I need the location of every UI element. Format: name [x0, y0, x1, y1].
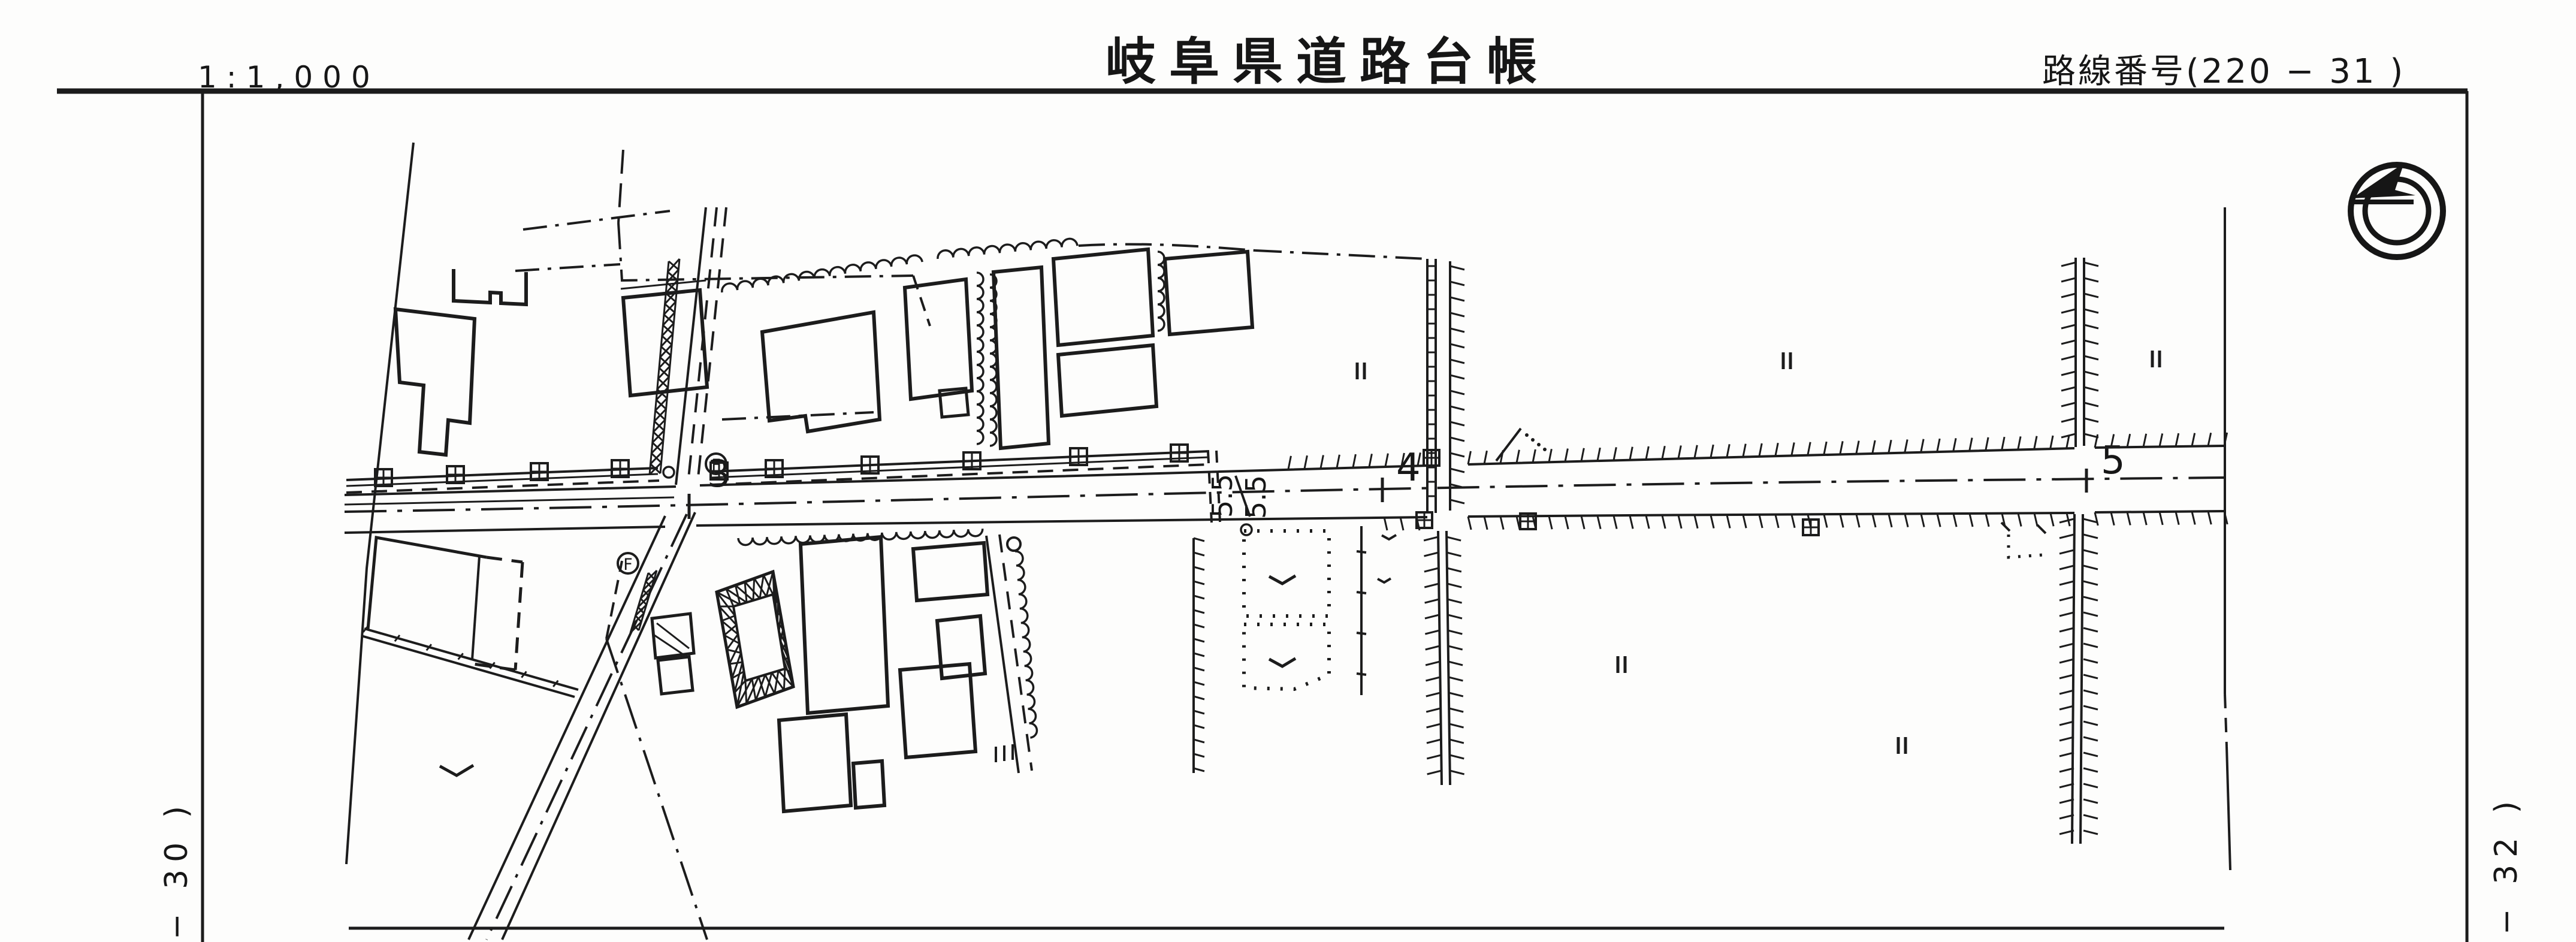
station-label-5: 5	[2101, 439, 2125, 483]
station-label-4: 4	[1396, 446, 1421, 490]
adjacent-sheet-ref-left: − 30 )	[159, 799, 195, 940]
road-ledger-map: 1:1,000 岐阜県道路台帳 路線番号(220 − 31 ) − 30 ) −…	[0, 0, 2576, 942]
north-arrow-icon	[2351, 163, 2443, 257]
adjacent-sheet-ref-right: − 32 )	[2489, 794, 2524, 935]
road-width-annotations: 5.5 5.5	[1206, 474, 1272, 519]
page-title: 岐阜県道路台帳	[1106, 32, 1550, 91]
road-width-value: 5.5	[1240, 475, 1272, 519]
route-number-label: 路線番号(220 − 31 )	[2042, 52, 2405, 91]
svg-text:F: F	[623, 555, 633, 574]
road-ledger-sheet: 1:1,000 岐阜県道路台帳 路線番号(220 − 31 ) − 30 ) −…	[0, 0, 2576, 942]
